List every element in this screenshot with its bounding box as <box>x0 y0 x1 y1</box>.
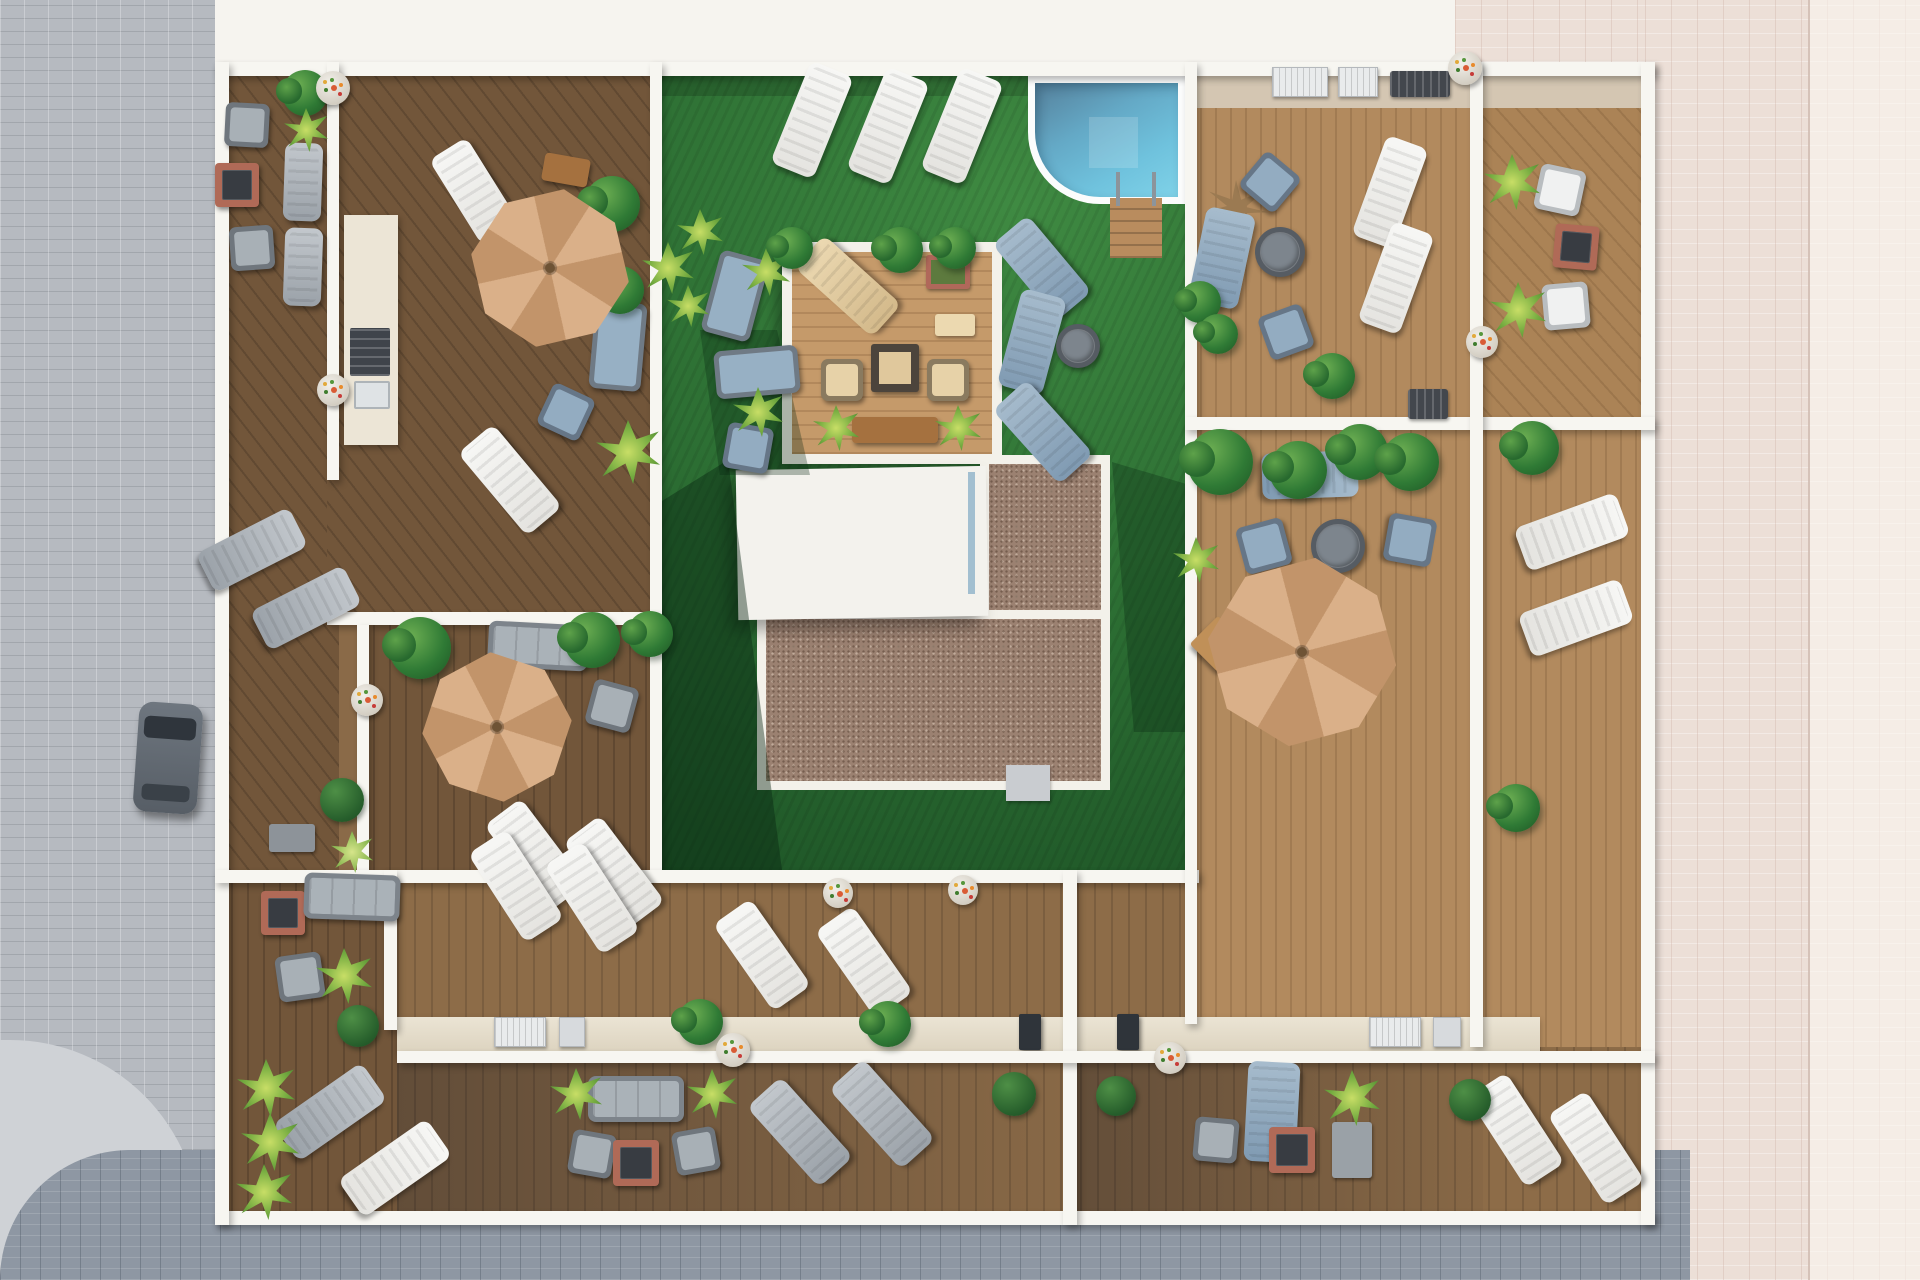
chair-blue <box>1382 512 1438 568</box>
sofa-gray <box>588 1076 684 1122</box>
wall <box>1470 62 1483 1047</box>
grill-dark <box>1390 71 1450 97</box>
street-top <box>215 0 1455 62</box>
chair-gray <box>1192 1116 1240 1164</box>
chair-blue <box>721 421 774 474</box>
wall <box>397 1051 1655 1063</box>
topiary <box>320 778 364 822</box>
ac-small <box>1433 1017 1461 1047</box>
fire-table <box>1269 1127 1315 1173</box>
shadow-bottom <box>397 1063 1063 1223</box>
kitchen-grill <box>350 328 390 376</box>
heater-post <box>1117 1014 1139 1050</box>
fire-table <box>215 163 259 207</box>
chair-gray <box>567 1129 618 1180</box>
wall <box>215 62 229 1225</box>
grill-box <box>269 824 315 852</box>
flowerpot <box>948 875 978 905</box>
flowerpot <box>351 684 383 716</box>
cushion-pair <box>935 314 975 336</box>
flowerpot <box>1154 1042 1186 1074</box>
table-round <box>1255 227 1305 277</box>
equip-ac <box>1338 67 1378 97</box>
wall <box>327 62 339 480</box>
chair-gray <box>671 1126 722 1177</box>
flowerpot <box>1448 51 1482 85</box>
fire-table <box>261 891 305 935</box>
gravel-roof <box>757 610 1110 790</box>
grill-dark <box>1408 389 1448 419</box>
bush <box>1269 441 1327 499</box>
topiary <box>992 1072 1036 1116</box>
wall <box>215 1211 1655 1225</box>
fire-table <box>1552 223 1600 271</box>
bush <box>934 227 976 269</box>
flowerpot <box>316 71 350 105</box>
chair-white <box>1533 163 1588 218</box>
skylight-line <box>968 472 975 594</box>
wall <box>1063 870 1077 1225</box>
table-dark <box>871 344 919 392</box>
ac-small <box>559 1017 585 1047</box>
topiary <box>337 1005 379 1047</box>
bush <box>1381 433 1439 491</box>
chair-beige <box>927 359 969 401</box>
white-roof <box>736 466 989 620</box>
ac-unit <box>494 1017 546 1047</box>
flowerpot <box>1466 326 1498 358</box>
bush <box>1492 784 1540 832</box>
wall <box>650 62 662 877</box>
lounger-gray <box>283 227 324 306</box>
bench-wood <box>852 417 938 443</box>
sidewalk <box>1808 0 1920 1280</box>
bush <box>1187 429 1253 495</box>
pool-steps <box>1110 198 1162 258</box>
bush <box>771 227 813 269</box>
bush <box>1309 353 1355 399</box>
chair-white <box>1541 281 1591 331</box>
bush <box>877 227 923 273</box>
equip-pad <box>1006 765 1050 801</box>
rooftop-aerial-render <box>0 0 1920 1280</box>
table-round <box>1056 324 1100 368</box>
lounger-gray <box>283 142 324 221</box>
topiary <box>1096 1076 1136 1116</box>
fire-table <box>613 1140 659 1186</box>
bush <box>1198 314 1238 354</box>
chair-beige <box>821 359 863 401</box>
wall <box>357 625 369 877</box>
bush <box>627 611 673 657</box>
chair-gray <box>229 225 276 272</box>
car <box>132 701 204 815</box>
kitchen-sink <box>354 381 390 409</box>
bush <box>389 617 451 679</box>
flowerpot <box>823 878 853 908</box>
bush <box>564 612 620 668</box>
equip-ac <box>1272 67 1328 97</box>
chair-gray <box>274 951 326 1003</box>
planter-gray <box>1332 1122 1372 1178</box>
ac-unit <box>1369 1017 1421 1047</box>
flowerpot <box>317 374 349 406</box>
pool <box>1028 76 1185 204</box>
bush <box>1505 421 1559 475</box>
bush <box>677 999 723 1045</box>
heater-post <box>1019 1014 1041 1050</box>
bush <box>865 1001 911 1047</box>
chair-gray <box>224 102 270 148</box>
topiary <box>1449 1079 1491 1121</box>
sofa-gray <box>303 872 401 921</box>
flowerpot <box>716 1033 750 1067</box>
